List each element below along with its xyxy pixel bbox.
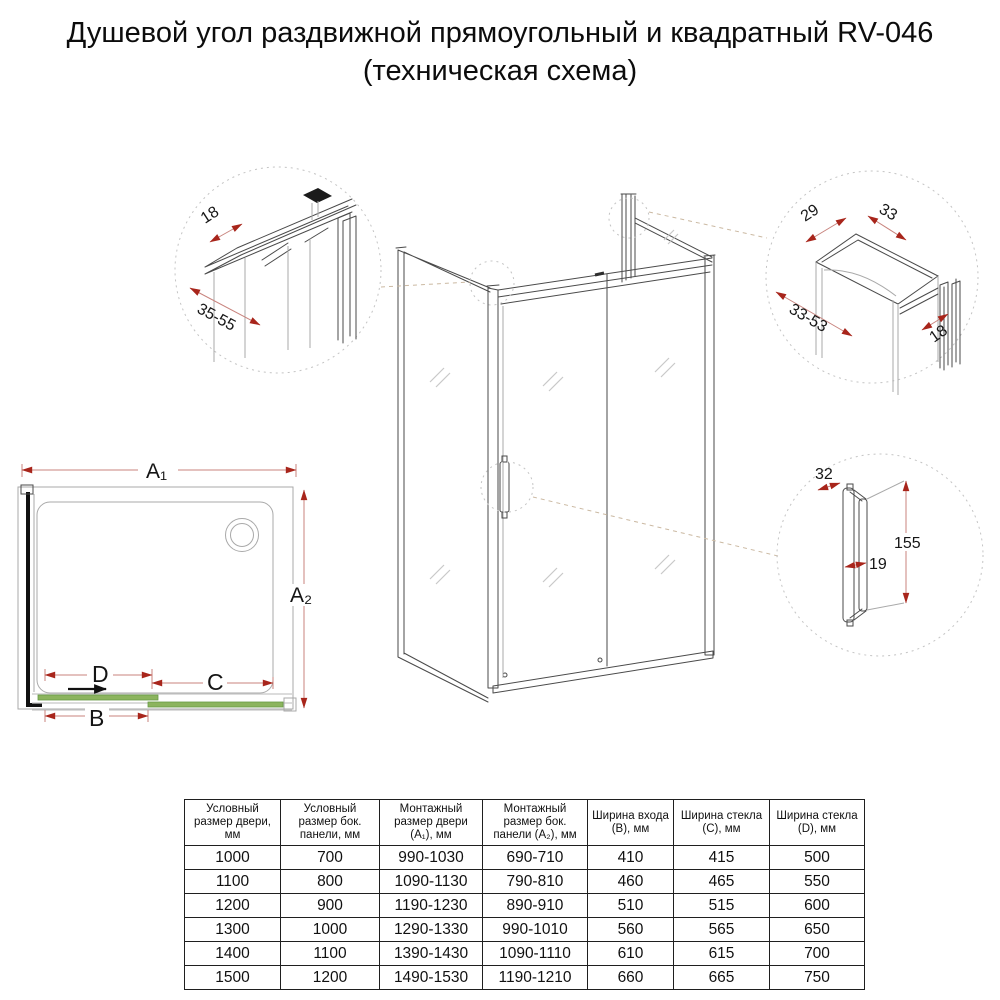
table-row: 12009001190-1230890-910510515600	[185, 894, 865, 918]
column-header: Условный размер бок. панели, мм	[281, 800, 380, 846]
table-cell: 1500	[185, 966, 281, 990]
table-cell: 610	[588, 942, 674, 966]
wall-bracket-cap	[303, 188, 332, 203]
handle-detail: 32 155 19	[777, 454, 983, 656]
diagram-title: Душевой угол раздвижной прямоугольный и …	[0, 14, 1000, 90]
table-cell: 660	[588, 966, 674, 990]
table-cell: 700	[770, 942, 865, 966]
dim-32-label: 32	[815, 466, 833, 483]
dim-35-55-label: 35-55	[194, 301, 238, 335]
dimension-profile-29: 29	[798, 201, 846, 242]
table-cell: 1000	[185, 846, 281, 870]
table-row: 150012001490-15301190-1210660665750	[185, 966, 865, 990]
title-line-1: Душевой угол раздвижной прямоугольный и …	[0, 14, 1000, 52]
table-cell: 1100	[281, 942, 380, 966]
dimension-handle-depth: 32	[815, 466, 840, 490]
dim-29-label: 29	[798, 201, 822, 225]
table-cell: 1100	[185, 870, 281, 894]
table-cell: 890-910	[483, 894, 588, 918]
dimension-a1: A₁	[22, 459, 296, 483]
table-cell: 690-710	[483, 846, 588, 870]
table-cell: 1200	[281, 966, 380, 990]
table-cell: 1090-1130	[380, 870, 483, 894]
label-a1: A₁	[146, 460, 167, 483]
dimension-d: D	[45, 661, 152, 689]
table-cell: 1190-1210	[483, 966, 588, 990]
table-cell: 1200	[185, 894, 281, 918]
dim-18b-label: 18	[927, 322, 951, 346]
dimension-wall-adjustment: 35-55	[190, 288, 260, 335]
label-b: B	[89, 705, 104, 731]
table-cell: 1290-1330	[380, 918, 483, 942]
label-c: C	[207, 669, 224, 695]
drain-inner-circle	[231, 524, 254, 547]
dim-155-label: 155	[894, 535, 921, 552]
column-header: Ширина стекла (C), мм	[674, 800, 770, 846]
size-table: Условный размер двери, ммУсловный размер…	[184, 799, 865, 990]
table-cell: 900	[281, 894, 380, 918]
column-header: Условный размер двери, мм	[185, 800, 281, 846]
glass-hatches	[430, 230, 678, 587]
table-cell: 1400	[185, 942, 281, 966]
table-cell: 990-1010	[483, 918, 588, 942]
table-cell: 615	[674, 942, 770, 966]
dim-19-label: 19	[869, 556, 887, 573]
dimension-handle-height: 155	[867, 481, 924, 610]
dimension-handle-grip: 19	[845, 556, 887, 573]
table-row: 1000700990-1030690-710410415500	[185, 846, 865, 870]
table-row: 11008001090-1130790-810460465550	[185, 870, 865, 894]
column-header: Монтажный размер двери (A₁), мм	[380, 800, 483, 846]
column-header: Ширина входа (B), мм	[588, 800, 674, 846]
table-cell: 665	[674, 966, 770, 990]
label-d: D	[92, 661, 109, 687]
table-cell: 600	[770, 894, 865, 918]
column-header: Монтажный размер бок. панели (A₂), мм	[483, 800, 588, 846]
dimension-profile-33: 33	[868, 201, 906, 240]
dim-33-53-label: 33-53	[786, 301, 830, 336]
dimension-wall-thickness: 18	[198, 203, 242, 242]
table-cell: 500	[770, 846, 865, 870]
table-cell: 510	[588, 894, 674, 918]
table-cell: 800	[281, 870, 380, 894]
table-cell: 790-810	[483, 870, 588, 894]
dim-18-label: 18	[198, 203, 222, 227]
table-cell: 650	[770, 918, 865, 942]
table-cell: 1390-1430	[380, 942, 483, 966]
label-a2: A₂	[290, 584, 312, 607]
table-cell: 990-1030	[380, 846, 483, 870]
sliding-door-glass	[38, 695, 158, 700]
table-cell: 465	[674, 870, 770, 894]
dim-33-label: 33	[876, 201, 900, 225]
wall-profile-detail: 18 35-55	[175, 167, 381, 373]
column-header: Ширина стекла (D), мм	[770, 800, 865, 846]
shower-3d-view	[381, 194, 778, 702]
table-header-row: Условный размер двери, ммУсловный размер…	[185, 800, 865, 846]
side-glass-panel	[26, 492, 30, 693]
table-cell: 460	[588, 870, 674, 894]
table-cell: 560	[588, 918, 674, 942]
table-cell: 515	[674, 894, 770, 918]
dimension-profile-adjustment: 33-53	[776, 292, 852, 336]
dimension-a2: A₂	[287, 490, 321, 708]
table-cell: 415	[674, 846, 770, 870]
table-cell: 550	[770, 870, 865, 894]
door-profile-detail: 29 33 33-53 18	[766, 171, 978, 395]
fixed-glass	[148, 702, 283, 707]
table-cell: 565	[674, 918, 770, 942]
table-cell: 750	[770, 966, 865, 990]
table-cell: 410	[588, 846, 674, 870]
table-cell: 700	[281, 846, 380, 870]
dimension-profile-18: 18	[922, 314, 951, 346]
dimension-c: C	[152, 669, 273, 695]
table-row: 130010001290-1330990-1010560565650	[185, 918, 865, 942]
title-line-2: (техническая схема)	[0, 52, 1000, 90]
table-cell: 1300	[185, 918, 281, 942]
technical-drawing: 18 35-55 29 33 33-53	[0, 100, 1000, 800]
table-cell: 1000	[281, 918, 380, 942]
plan-view: A₁ A₂ D C B	[18, 459, 321, 731]
table-cell: 1490-1530	[380, 966, 483, 990]
table-body: 1000700990-1030690-710410415500110080010…	[185, 846, 865, 990]
table-cell: 1090-1110	[483, 942, 588, 966]
table-row: 140011001390-14301090-1110610615700	[185, 942, 865, 966]
table-cell: 1190-1230	[380, 894, 483, 918]
